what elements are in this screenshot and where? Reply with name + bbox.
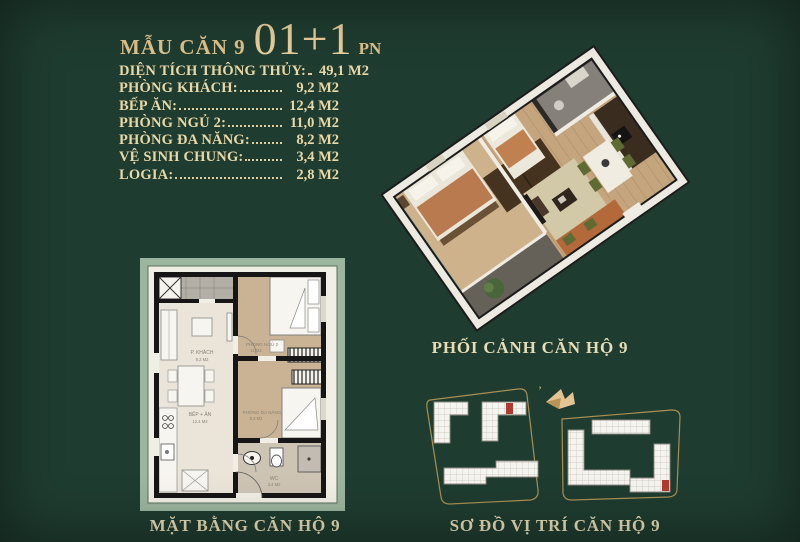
- unit-title-prefix: MẪU CĂN 9: [120, 35, 246, 60]
- perspective-caption: PHỐI CẢNH CĂN HỘ 9: [380, 338, 680, 358]
- brand-bird-icon: ’: [538, 383, 575, 409]
- svg-text:’: ’: [538, 383, 542, 397]
- room-label-kitchen: BẾP + ĂN: [189, 411, 212, 418]
- spec-row-kitchen: BẾP ĂN:12,4 M2: [119, 98, 339, 115]
- spec-row-wc: VỆ SINH CHUNG:3,4 M2: [119, 149, 339, 166]
- room-area-multipurpose: 8.2 M2: [250, 416, 263, 421]
- room-area-kitchen: 12.4 M2: [192, 419, 208, 424]
- spec-row-bedroom2: PHÒNG NGỦ 2:11,0 M2: [119, 115, 339, 132]
- room-area-wc: 3.4 M2: [268, 482, 281, 487]
- spec-list: DIỆN TÍCH THÔNG THỦY:49,1 M2 PHÒNG KHÁCH…: [119, 63, 339, 184]
- spec-row-living: PHÒNG KHÁCH:9,2 M2: [119, 80, 339, 97]
- floor-plan-caption: MẶT BẰNG CĂN HỘ 9: [138, 516, 352, 536]
- site-plan: ’: [420, 372, 692, 514]
- room-area-bedroom2: 11 M2: [250, 348, 262, 353]
- brochure-page: MẪU CĂN 9 01+1 PN DIỆN TÍCH THÔNG THỦY:4…: [0, 0, 800, 542]
- floor-plan: P. KHÁCH 9.2 M2 BẾP + ĂN 12.4 M2 PHÒNG N…: [140, 258, 345, 511]
- unit-title: MẪU CĂN 9 01+1 PN: [120, 12, 381, 65]
- site-plan-caption: SƠ ĐỒ VỊ TRÍ CĂN HỘ 9: [430, 516, 680, 536]
- spec-row-logia: LOGIA:2,8 M2: [119, 167, 339, 184]
- spec-row-total-area: DIỆN TÍCH THÔNG THỦY:49,1 M2: [119, 63, 339, 80]
- room-area-living: 9.2 M2: [196, 357, 209, 362]
- unit-title-number: 01+1: [254, 12, 353, 65]
- room-label-bedroom2: PHÒNG NGỦ 2: [246, 341, 279, 347]
- spec-row-multipurpose: PHÒNG ĐA NĂNG:8,2 M2: [119, 132, 339, 149]
- highlight-unit-right: [662, 480, 669, 491]
- highlight-unit-left: [506, 403, 513, 414]
- perspective-render: [370, 38, 790, 340]
- room-label-living: P. KHÁCH: [191, 349, 214, 356]
- room-label-multipurpose: PHÒNG ĐA NĂNG: [243, 409, 282, 415]
